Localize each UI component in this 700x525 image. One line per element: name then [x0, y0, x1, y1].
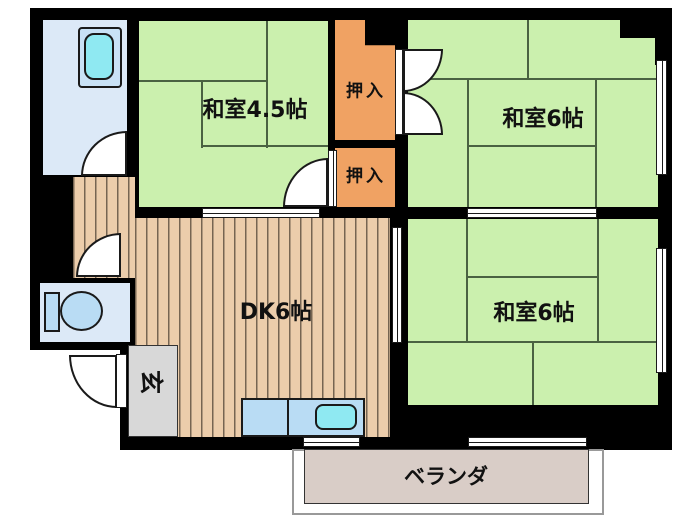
label-washitsu-6-right: 和室6帖	[493, 303, 574, 325]
tatami-line	[467, 78, 469, 207]
tatami-line	[266, 21, 268, 148]
window-right-top	[656, 60, 667, 175]
entry-door-swing	[69, 355, 117, 408]
door-kitchen-veranda	[303, 437, 360, 447]
toilet-bowl	[60, 291, 103, 331]
label-oshiire-bottom: 押入	[346, 169, 386, 186]
sliding-door-washitsu45-dk	[202, 208, 320, 218]
floorplan: 和室4.5帖 和室6帖 和室6帖 DK6帖 押入 押入 玄 ベランダ	[0, 0, 700, 525]
kitchen-counter	[241, 398, 365, 437]
window-veranda	[468, 437, 587, 447]
tatami-line	[527, 20, 529, 78]
entry-door-leaf	[116, 354, 127, 408]
bathtub-inner	[84, 33, 114, 80]
tatami-line	[467, 145, 597, 147]
bathtub-icon	[78, 27, 122, 88]
tatami-line	[532, 341, 534, 405]
label-washitsu-6-top: 和室6帖	[502, 109, 583, 131]
sliding-door-washitsu6-washitsu6	[467, 208, 597, 218]
kitchen-counter-divider	[287, 400, 289, 435]
label-oshiire-top: 押入	[346, 84, 386, 101]
tatami-line	[408, 78, 658, 80]
tatami-line	[466, 219, 468, 343]
sliding-door-oshiire-bottom	[328, 150, 337, 207]
label-washitsu-4-5: 和室4.5帖	[203, 100, 308, 122]
toilet-icon	[44, 292, 60, 332]
closet-double-door-leaf	[395, 49, 403, 135]
kitchen-sink-icon	[315, 404, 357, 430]
tatami-line	[201, 145, 328, 147]
tatami-line	[597, 219, 599, 343]
tatami-line	[595, 78, 597, 207]
label-veranda: ベランダ	[404, 467, 488, 488]
tatami-line	[466, 276, 599, 278]
wall-corner-notch	[655, 8, 672, 65]
window-right-middle	[656, 248, 667, 373]
label-genkan: 玄	[139, 370, 163, 394]
label-dk: DK6帖	[240, 302, 313, 324]
sliding-door-dk-washitsu6	[392, 227, 402, 343]
